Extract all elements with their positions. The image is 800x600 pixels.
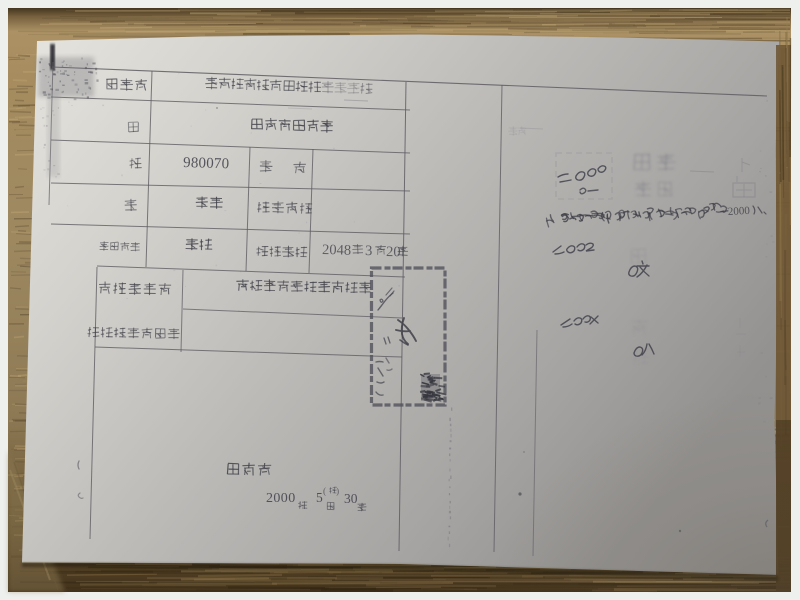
svg-text:2000: 2000	[728, 205, 751, 218]
svg-text:2048: 2048	[322, 242, 351, 259]
svg-text:30: 30	[344, 491, 358, 506]
svg-text:20: 20	[386, 244, 401, 260]
svg-text:): )	[336, 486, 339, 497]
svg-text:2000: 2000	[266, 491, 296, 506]
svg-text:(: (	[323, 486, 326, 497]
svg-text:3: 3	[365, 243, 373, 259]
svg-text:980070: 980070	[183, 155, 230, 172]
svg-text:5: 5	[316, 490, 323, 505]
